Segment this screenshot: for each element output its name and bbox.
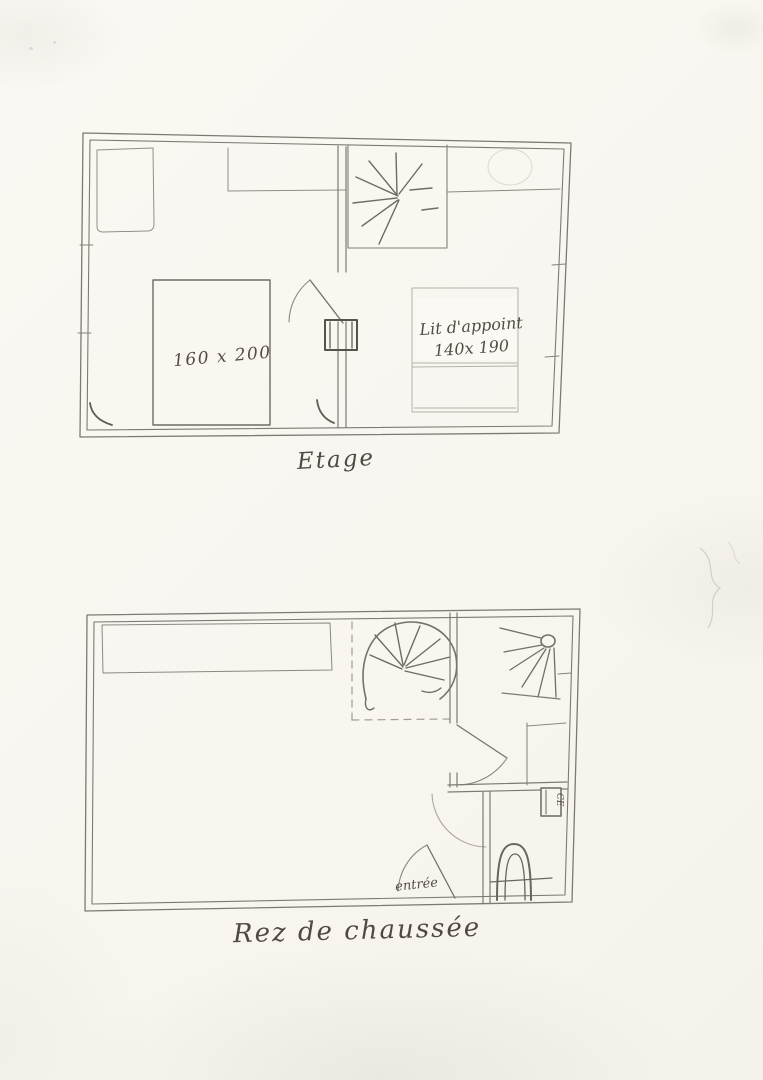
- rdc-spiral-staircase-icon: [363, 622, 457, 710]
- rdc-wall-box: CE: [541, 788, 564, 816]
- rdc-bathroom-wall: [450, 613, 457, 787]
- entrance-label: entrée: [395, 875, 440, 894]
- etage-door-icon: [289, 280, 343, 323]
- rdc-ceiling-light-icon: [500, 628, 556, 697]
- floor-plan-rez-de-chaussee: CE entrée: [70, 595, 590, 935]
- rdc-bathroom-door-icon: [457, 725, 507, 785]
- paper-speck: [29, 47, 33, 50]
- etage-pencil-smudge: [488, 149, 532, 185]
- rdc-hall-wall: [448, 782, 567, 792]
- wall-box-label: CE: [554, 793, 564, 807]
- etage-staircase-icon: [348, 145, 447, 248]
- rdc-counter: [102, 623, 332, 673]
- etage-partition-wall: [338, 146, 346, 428]
- etage-flue-box-icon: [325, 320, 357, 350]
- etage-closet: [228, 148, 346, 191]
- main-bed-label: 160 x 200: [172, 343, 272, 372]
- etage-bottom-door-arcs: [90, 400, 334, 425]
- etage-main-bed: 160 x 200: [153, 280, 273, 425]
- rdc-bathroom-closet: [527, 723, 566, 785]
- rdc-wc-wall: [483, 792, 490, 903]
- paper-speck: [53, 41, 56, 44]
- etage-caption: Etage: [296, 445, 375, 475]
- rdc-toilet-icon: [490, 844, 552, 900]
- rdc-shelf-line: [502, 693, 560, 699]
- floor-plan-etage: 160 x 200 Lit d'appoint 140x 190: [70, 120, 590, 450]
- rdc-hall-door-arc: [432, 794, 486, 847]
- paper-curl-marks: [688, 540, 758, 640]
- etage-wardrobe: [97, 148, 154, 232]
- rdc-stair-dashed-boundary: [352, 622, 450, 720]
- rdc-window-tick: [558, 673, 571, 674]
- etage-right-partition-line: [447, 189, 560, 192]
